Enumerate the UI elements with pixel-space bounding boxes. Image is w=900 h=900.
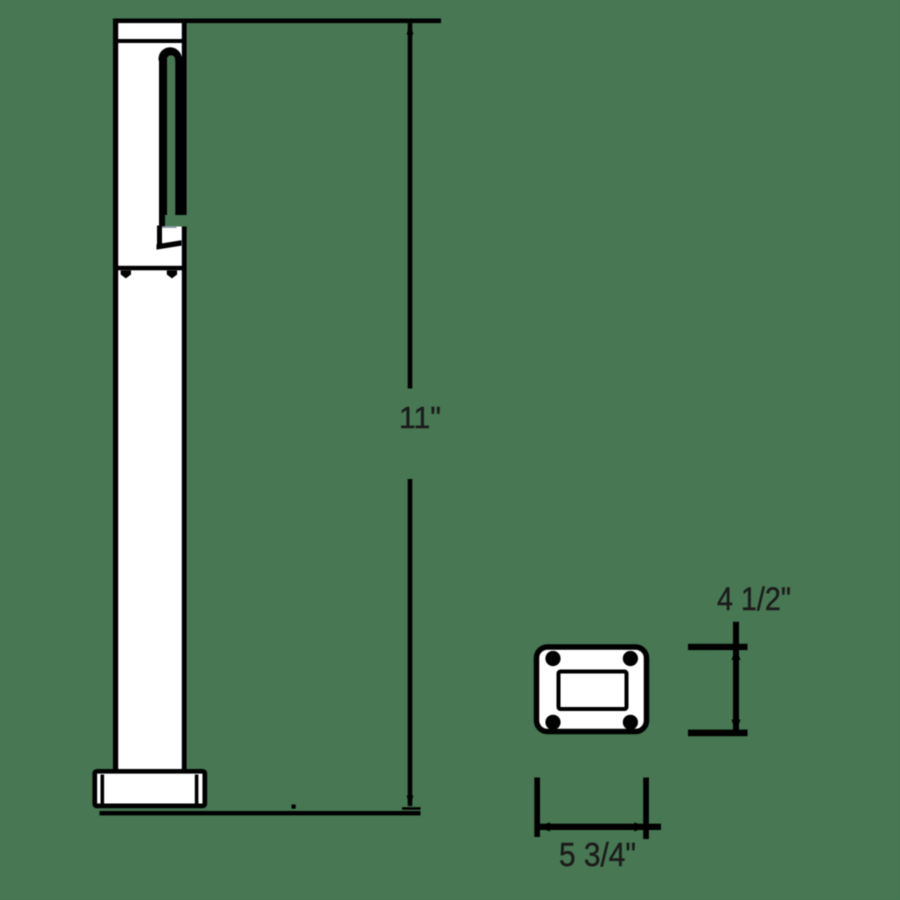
- svg-text:11": 11": [399, 400, 441, 435]
- svg-text:4 1/2": 4 1/2": [717, 581, 791, 617]
- svg-text:5 3/4": 5 3/4": [559, 836, 636, 873]
